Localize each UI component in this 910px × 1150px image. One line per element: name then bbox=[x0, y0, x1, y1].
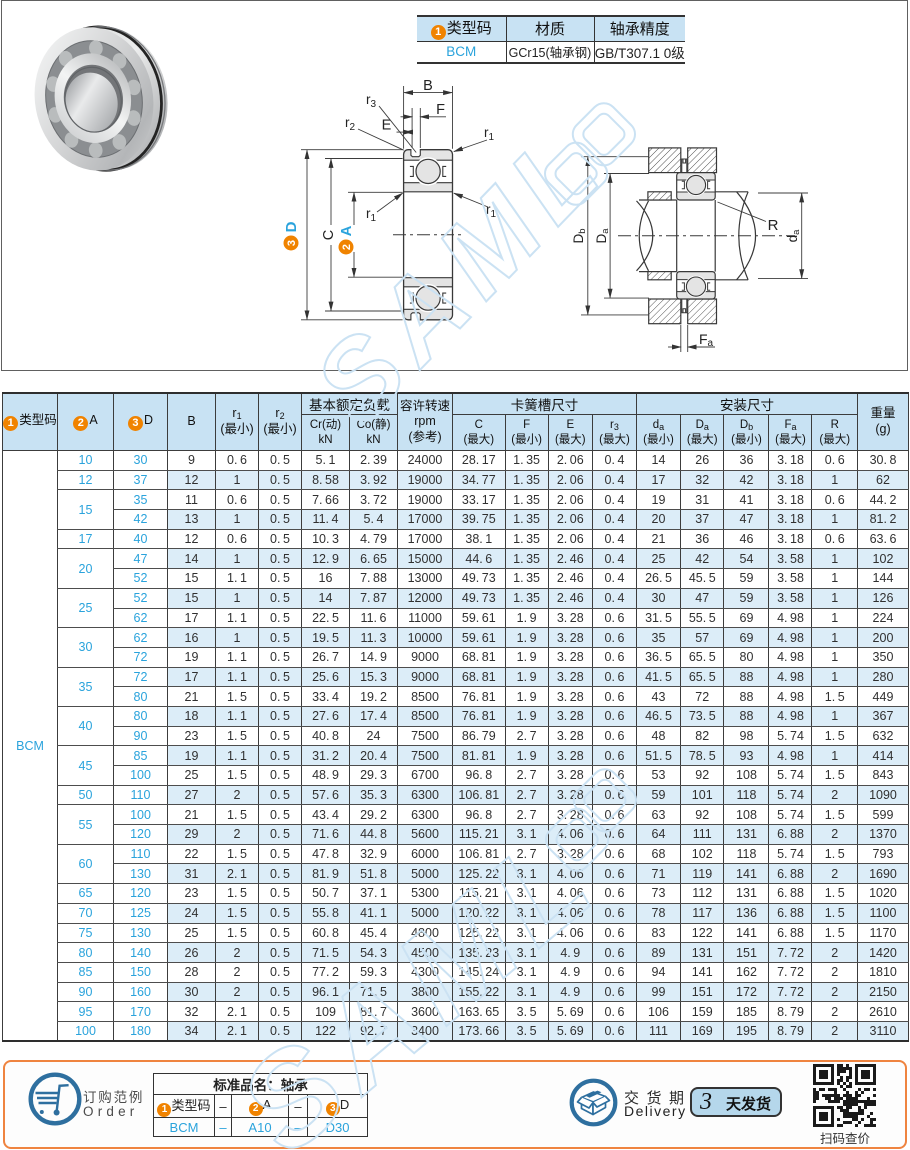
svg-text:r2: r2 bbox=[345, 115, 356, 133]
svg-text:C: C bbox=[321, 230, 337, 240]
svg-text:A: A bbox=[338, 225, 355, 236]
svg-text:Db: Db bbox=[571, 228, 588, 243]
svg-text:2: 2 bbox=[341, 244, 353, 250]
svg-text:r3: r3 bbox=[366, 92, 377, 110]
svg-text:r1: r1 bbox=[366, 206, 377, 224]
svg-text:Da: Da bbox=[594, 228, 611, 244]
svg-text:F: F bbox=[436, 102, 445, 118]
svg-text:D: D bbox=[283, 221, 300, 232]
svg-text:Fa: Fa bbox=[699, 331, 714, 349]
svg-text:R: R bbox=[768, 217, 779, 234]
svg-text:da: da bbox=[785, 229, 802, 243]
svg-text:B: B bbox=[423, 78, 433, 94]
svg-text:3: 3 bbox=[286, 240, 298, 246]
svg-text:r1: r1 bbox=[486, 202, 497, 220]
